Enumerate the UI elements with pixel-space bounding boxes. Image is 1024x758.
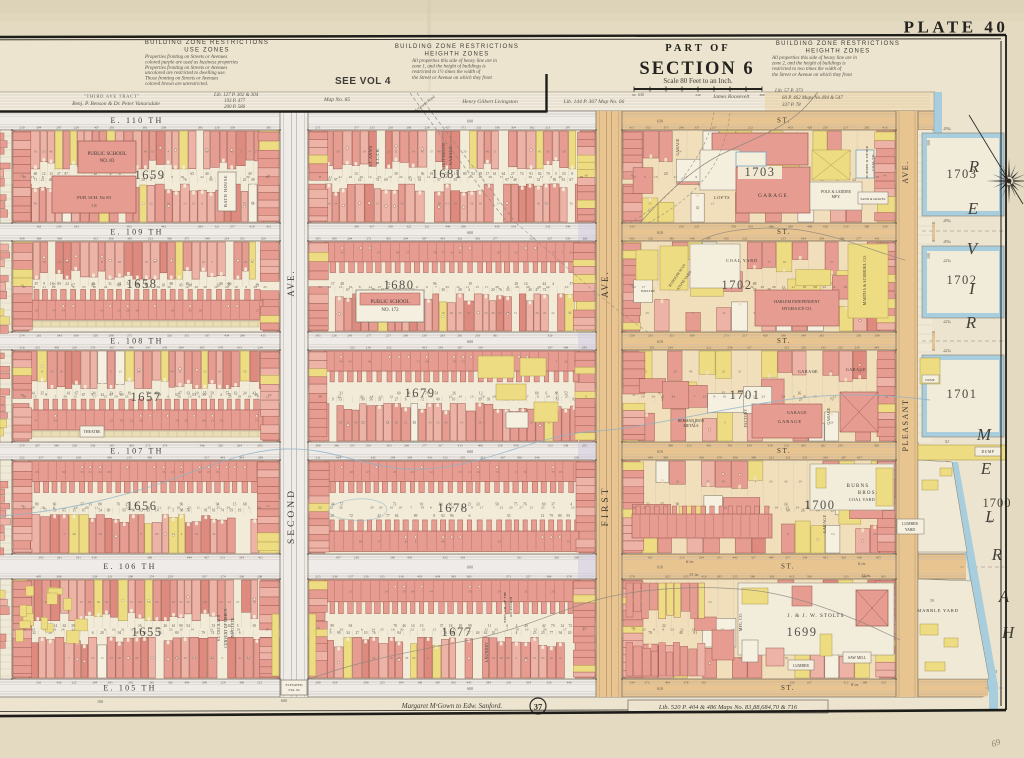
svg-text:321: 321	[425, 224, 430, 228]
svg-text:24: 24	[371, 628, 375, 632]
svg-text:41: 41	[538, 150, 542, 154]
svg-text:630: 630	[657, 119, 663, 124]
svg-text:377: 377	[354, 126, 359, 130]
svg-text:301: 301	[493, 333, 498, 337]
svg-text:25: 25	[380, 628, 384, 632]
svg-text:427: 427	[370, 224, 375, 228]
svg-text:374: 374	[162, 443, 167, 447]
svg-text:325: 325	[665, 575, 670, 579]
svg-text:310: 310	[843, 224, 848, 228]
svg-text:ST.: ST.	[777, 228, 791, 236]
svg-text:333: 333	[748, 224, 753, 228]
svg-text:23: 23	[642, 628, 646, 632]
svg-text:26: 26	[339, 506, 343, 510]
svg-text:52: 52	[149, 201, 153, 205]
svg-text:14: 14	[190, 628, 194, 632]
svg-text:30: 30	[246, 175, 250, 179]
svg-text:228: 228	[76, 456, 81, 460]
svg-text:AVE.: AVE.	[901, 160, 910, 183]
svg-text:295: 295	[316, 237, 321, 241]
svg-text:57: 57	[430, 150, 434, 154]
svg-text:353: 353	[881, 680, 886, 684]
svg-text:232: 232	[476, 126, 481, 130]
svg-text:5: 5	[585, 395, 587, 399]
svg-text:1658: 1658	[127, 277, 158, 291]
svg-text:77: 77	[550, 631, 554, 635]
svg-text:420: 420	[807, 126, 812, 130]
svg-text:385: 385	[316, 333, 321, 337]
svg-text:E. 109 TH: E. 109 TH	[110, 228, 163, 237]
svg-text:391: 391	[727, 443, 732, 447]
svg-text:29: 29	[370, 506, 374, 510]
svg-text:74: 74	[520, 172, 524, 176]
svg-text:48: 48	[513, 178, 517, 182]
svg-text:5: 5	[692, 311, 694, 315]
svg-text:213: 213	[679, 555, 684, 559]
svg-text:273: 273	[724, 333, 729, 337]
svg-text:E: E	[980, 459, 992, 478]
svg-text:80: 80	[98, 503, 102, 507]
svg-text:Henry Gilbert Livingston: Henry Gilbert Livingston	[461, 99, 518, 105]
svg-text:100: 100	[926, 253, 931, 259]
svg-text:344: 344	[801, 333, 806, 337]
svg-text:15: 15	[100, 656, 104, 660]
svg-text:222: 222	[742, 237, 747, 241]
svg-text:28: 28	[203, 600, 207, 604]
svg-text:DUMP: DUMP	[982, 450, 995, 454]
svg-text:48: 48	[188, 283, 192, 287]
svg-text:45: 45	[349, 360, 353, 364]
svg-text:264: 264	[347, 237, 352, 241]
svg-text:19: 19	[831, 532, 835, 536]
svg-text:228: 228	[92, 575, 97, 579]
svg-text:418: 418	[407, 555, 412, 559]
svg-text:399: 399	[663, 456, 668, 460]
svg-text:298: 298	[202, 680, 207, 684]
svg-text:6: 6	[507, 285, 509, 289]
svg-text:8: 8	[330, 628, 332, 632]
svg-text:326: 326	[547, 333, 552, 337]
svg-text:408: 408	[478, 443, 483, 447]
svg-text:29: 29	[537, 285, 541, 289]
svg-text:ST. ANN'S: ST. ANN'S	[368, 145, 373, 167]
svg-text:16: 16	[97, 600, 101, 604]
svg-text:390: 390	[147, 456, 152, 460]
svg-text:434: 434	[435, 575, 440, 579]
svg-text:5: 5	[110, 369, 112, 373]
svg-text:15: 15	[179, 628, 183, 632]
svg-text:44: 44	[430, 589, 434, 593]
svg-text:297: 297	[548, 346, 553, 350]
svg-text:45: 45	[421, 150, 425, 154]
svg-text:35: 35	[145, 260, 149, 264]
svg-text:386: 386	[862, 680, 867, 684]
svg-text:FIRST: FIRST	[601, 486, 611, 527]
svg-text:COAL YD.: COAL YD.	[871, 153, 875, 170]
svg-text:193 P. 477: 193 P. 477	[224, 99, 246, 104]
svg-text:28: 28	[529, 175, 533, 179]
svg-text:434: 434	[224, 333, 229, 337]
svg-text:8 in.: 8 in.	[851, 682, 859, 687]
svg-text:61: 61	[570, 250, 574, 254]
svg-text:367: 367	[501, 456, 506, 460]
svg-text:230: 230	[364, 575, 369, 579]
svg-text:ST.: ST.	[777, 447, 791, 455]
svg-text:4: 4	[516, 631, 518, 635]
svg-text:328: 328	[546, 680, 551, 684]
svg-text:94: 94	[349, 624, 353, 628]
svg-text:354: 354	[366, 443, 371, 447]
svg-text:14: 14	[412, 150, 416, 154]
svg-text:610: 610	[657, 339, 663, 344]
svg-text:21: 21	[674, 175, 678, 179]
svg-text:20: 20	[100, 631, 104, 635]
svg-text:271: 271	[506, 575, 511, 579]
svg-text:15: 15	[73, 395, 77, 399]
svg-text:72: 72	[569, 624, 573, 628]
svg-text:POLE & LADDER: POLE & LADDER	[821, 190, 851, 194]
svg-text:600: 600	[467, 119, 473, 124]
svg-text:63: 63	[171, 309, 175, 313]
svg-text:32: 32	[32, 631, 36, 635]
svg-text:318: 318	[399, 575, 404, 579]
svg-text:27: 27	[498, 311, 502, 315]
svg-text:20: 20	[664, 172, 668, 176]
svg-text:388: 388	[864, 224, 869, 228]
svg-text:93: 93	[567, 514, 571, 518]
svg-text:600: 600	[281, 698, 287, 703]
svg-text:14: 14	[510, 175, 514, 179]
svg-text:31: 31	[459, 470, 463, 474]
svg-text:HARLEM INDEPENDENT: HARLEM INDEPENDENT	[774, 299, 820, 304]
svg-text:17: 17	[346, 421, 350, 425]
svg-text:BURNS: BURNS	[847, 484, 870, 489]
svg-text:13: 13	[354, 172, 358, 176]
svg-text:1657: 1657	[131, 390, 162, 404]
svg-text:50: 50	[205, 150, 209, 154]
svg-text:386: 386	[733, 456, 738, 460]
svg-text:54: 54	[219, 419, 223, 423]
svg-text:26: 26	[35, 309, 39, 313]
svg-text:37: 37	[377, 540, 381, 544]
svg-text:363: 363	[36, 224, 41, 228]
svg-text:234: 234	[699, 555, 704, 559]
svg-text:20: 20	[509, 506, 513, 510]
svg-text:315: 315	[380, 575, 385, 579]
svg-text:76: 76	[372, 631, 376, 635]
svg-text:34: 34	[346, 631, 350, 635]
svg-text:404: 404	[184, 680, 189, 684]
svg-text:446: 446	[129, 346, 134, 350]
svg-text:44: 44	[386, 421, 390, 425]
svg-text:344: 344	[874, 346, 879, 350]
svg-text:362: 362	[582, 237, 587, 241]
svg-text:340: 340	[54, 443, 59, 447]
svg-text:22: 22	[411, 470, 415, 474]
svg-text:94: 94	[559, 631, 563, 635]
svg-text:61: 61	[493, 172, 497, 176]
svg-text:89: 89	[57, 282, 61, 286]
svg-text:23: 23	[228, 395, 232, 399]
svg-text:351: 351	[669, 333, 674, 337]
svg-text:301: 301	[881, 575, 886, 579]
svg-text:69: 69	[107, 509, 111, 513]
svg-text:29: 29	[799, 480, 803, 484]
svg-text:48: 48	[679, 631, 683, 635]
svg-text:38: 38	[405, 656, 409, 660]
svg-text:234: 234	[258, 346, 263, 350]
svg-text:53: 53	[562, 172, 566, 176]
svg-text:50: 50	[570, 201, 574, 205]
svg-text:292: 292	[819, 333, 824, 337]
svg-text:443: 443	[220, 456, 225, 460]
svg-text:71: 71	[255, 419, 259, 423]
svg-text:13: 13	[118, 369, 122, 373]
svg-text:22: 22	[225, 285, 229, 289]
svg-text:Properties fronting on Streets: Properties fronting on Streets or Avenue…	[144, 66, 227, 71]
svg-text:352: 352	[785, 456, 790, 460]
svg-text:37: 37	[57, 172, 61, 176]
svg-text:32: 32	[387, 150, 391, 154]
svg-text:21: 21	[89, 470, 93, 474]
svg-text:19: 19	[497, 589, 501, 593]
svg-text:19: 19	[184, 419, 188, 423]
svg-text:236: 236	[574, 456, 579, 460]
svg-text:23: 23	[670, 628, 674, 632]
svg-text:294: 294	[403, 237, 408, 241]
svg-text:22: 22	[885, 395, 889, 399]
svg-text:17: 17	[499, 175, 503, 179]
svg-text:16: 16	[391, 628, 395, 632]
svg-text:40: 40	[244, 260, 248, 264]
svg-text:229: 229	[221, 680, 226, 684]
svg-text:25: 25	[446, 285, 450, 289]
svg-text:15: 15	[433, 628, 437, 632]
svg-text:306: 306	[167, 237, 172, 241]
svg-text:25: 25	[82, 285, 86, 289]
svg-text:POULTRY: POULTRY	[641, 289, 656, 293]
svg-text:65: 65	[190, 172, 194, 176]
svg-text:236: 236	[332, 575, 337, 579]
svg-text:334: 334	[239, 555, 244, 559]
svg-text:314: 314	[511, 224, 516, 228]
svg-text:351: 351	[240, 237, 245, 241]
svg-text:USE ZONES: USE ZONES	[184, 48, 229, 54]
svg-text:47: 47	[179, 600, 183, 604]
svg-text:337 P. 78: 337 P. 78	[782, 103, 801, 108]
svg-text:uncolored are restricted to dw: uncolored are restricted to dwelling use…	[145, 71, 226, 76]
svg-text:51: 51	[413, 421, 417, 425]
svg-text:48: 48	[491, 311, 495, 315]
svg-text:71: 71	[417, 360, 421, 364]
svg-text:9: 9	[140, 532, 142, 536]
svg-text:E. 110 TH: E. 110 TH	[111, 116, 164, 125]
svg-text:80: 80	[175, 631, 179, 635]
svg-text:439: 439	[648, 456, 653, 460]
svg-text:437: 437	[336, 555, 341, 559]
svg-text:272: 272	[645, 680, 650, 684]
svg-text:358: 358	[230, 126, 235, 130]
svg-text:53: 53	[484, 311, 488, 315]
svg-text:LAUNDRY: LAUNDRY	[485, 642, 489, 662]
svg-text:28: 28	[63, 395, 67, 399]
svg-text:15: 15	[203, 369, 207, 373]
svg-text:201: 201	[648, 333, 653, 337]
svg-text:1700: 1700	[805, 498, 836, 512]
svg-text:200: 200	[862, 575, 867, 579]
svg-text:44: 44	[212, 532, 216, 536]
svg-text:292: 292	[39, 555, 44, 559]
svg-text:317: 317	[204, 456, 209, 460]
svg-text:7: 7	[240, 150, 242, 154]
svg-text:24: 24	[61, 628, 65, 632]
svg-text:411: 411	[258, 555, 263, 559]
svg-text:227: 227	[807, 680, 812, 684]
svg-text:6: 6	[239, 656, 241, 660]
svg-text:54: 54	[57, 260, 61, 264]
svg-text:56: 56	[421, 172, 425, 176]
svg-text:387: 387	[110, 443, 115, 447]
svg-text:257: 257	[348, 575, 353, 579]
svg-text:E. 105 TH: E. 105 TH	[103, 684, 156, 693]
svg-text:1655: 1655	[132, 625, 163, 639]
svg-text:27: 27	[519, 506, 523, 510]
svg-text:22: 22	[449, 395, 453, 399]
svg-text:1701: 1701	[947, 387, 978, 401]
svg-text:267: 267	[458, 346, 463, 350]
svg-text:12: 12	[266, 395, 270, 399]
svg-text:415: 415	[789, 575, 794, 579]
svg-text:9: 9	[653, 628, 655, 632]
svg-text:52: 52	[461, 360, 465, 364]
svg-text:55: 55	[648, 201, 652, 205]
svg-text:4: 4	[181, 532, 183, 536]
svg-text:80: 80	[117, 283, 121, 287]
svg-text:28: 28	[175, 419, 179, 423]
svg-text:NO. 172: NO. 172	[381, 308, 399, 313]
svg-text:73: 73	[393, 503, 397, 507]
svg-text:24: 24	[318, 285, 322, 289]
svg-text:228: 228	[425, 126, 430, 130]
svg-text:10: 10	[185, 285, 189, 289]
svg-text:380: 380	[316, 443, 321, 447]
svg-text:29: 29	[339, 628, 343, 632]
svg-text:242: 242	[679, 224, 684, 228]
svg-text:222: 222	[20, 456, 25, 460]
svg-text:22: 22	[99, 470, 103, 474]
svg-text:610: 610	[657, 230, 663, 235]
svg-text:30: 30	[85, 506, 89, 510]
svg-text:200: 200	[574, 555, 579, 559]
svg-text:14: 14	[795, 506, 799, 510]
svg-text:9: 9	[714, 395, 716, 399]
svg-text:14: 14	[450, 250, 454, 254]
svg-text:4: 4	[167, 150, 169, 154]
svg-text:9: 9	[332, 397, 334, 401]
svg-text:12: 12	[661, 395, 665, 399]
svg-text:255: 255	[582, 443, 587, 447]
svg-text:15: 15	[33, 395, 37, 399]
svg-text:257: 257	[386, 333, 391, 337]
svg-text:8: 8	[257, 395, 259, 399]
svg-text:294: 294	[179, 346, 184, 350]
svg-text:405: 405	[36, 575, 41, 579]
svg-text:238: 238	[161, 126, 166, 130]
svg-text:48: 48	[689, 369, 693, 373]
svg-text:24: 24	[782, 395, 786, 399]
svg-text:409: 409	[807, 224, 812, 228]
svg-text:363: 363	[466, 575, 471, 579]
svg-text:340: 340	[354, 224, 359, 228]
svg-text:GARAGE: GARAGE	[676, 138, 680, 156]
svg-text:40: 40	[390, 656, 394, 660]
svg-text:CONVENT OF MERCY: CONVENT OF MERCY	[224, 608, 228, 648]
svg-text:234: 234	[668, 346, 673, 350]
svg-text:203: 203	[475, 333, 480, 337]
svg-text:315: 315	[184, 333, 189, 337]
svg-text:75: 75	[551, 470, 555, 474]
svg-text:HEIGHTH ZONES: HEIGHTH ZONES	[806, 49, 871, 55]
svg-text:334: 334	[526, 680, 531, 684]
svg-text:18: 18	[59, 369, 63, 373]
svg-text:247: 247	[146, 346, 151, 350]
svg-text:57: 57	[406, 250, 410, 254]
svg-text:401: 401	[706, 443, 711, 447]
svg-text:359: 359	[819, 237, 824, 241]
svg-text:26: 26	[203, 285, 207, 289]
svg-text:36: 36	[404, 540, 408, 544]
svg-text:219: 219	[506, 680, 511, 684]
svg-text:403: 403	[788, 126, 793, 130]
svg-text:11: 11	[493, 150, 497, 154]
svg-text:PUBLIC SCHOOL: PUBLIC SCHOOL	[370, 300, 409, 305]
svg-text:9: 9	[695, 175, 697, 179]
svg-text:62: 62	[120, 419, 124, 423]
svg-text:246: 246	[404, 443, 409, 447]
svg-text:25: 25	[207, 506, 211, 510]
svg-text:29: 29	[580, 175, 584, 179]
svg-text:88: 88	[180, 509, 184, 513]
svg-text:280: 280	[316, 680, 321, 684]
svg-text:27: 27	[153, 260, 157, 264]
svg-text:34: 34	[62, 309, 66, 313]
svg-text:23: 23	[377, 175, 381, 179]
svg-text:92: 92	[471, 172, 475, 176]
svg-text:Benj. P. Benson & Dr. Peter: Benj. P. Benson & Dr. Peter Vanarsdale	[72, 101, 160, 107]
svg-text:A: A	[998, 587, 1010, 606]
svg-text:27: 27	[582, 628, 586, 632]
svg-text:41: 41	[266, 504, 270, 508]
svg-text:325: 325	[380, 680, 385, 684]
svg-text:281: 281	[109, 126, 114, 130]
svg-text:416: 416	[882, 126, 887, 130]
svg-text:LOFTS: LOFTS	[713, 195, 730, 200]
svg-text:James Roosevelt: James Roosevelt	[713, 94, 750, 100]
svg-text:65: 65	[253, 624, 257, 628]
svg-text:14: 14	[427, 175, 431, 179]
svg-text:6: 6	[469, 514, 471, 518]
svg-text:264: 264	[237, 443, 242, 447]
svg-text:55: 55	[193, 656, 197, 660]
svg-text:6: 6	[551, 175, 553, 179]
svg-text:29: 29	[676, 480, 680, 484]
svg-text:33: 33	[412, 656, 416, 660]
svg-text:288: 288	[109, 333, 114, 337]
svg-text:HEIGHTH ZONES: HEIGHTH ZONES	[425, 52, 490, 58]
svg-text:318: 318	[769, 575, 774, 579]
svg-text:LUMBER: LUMBER	[793, 664, 809, 668]
svg-text:"THIRD AVE TRACT": "THIRD AVE TRACT"	[84, 94, 140, 99]
